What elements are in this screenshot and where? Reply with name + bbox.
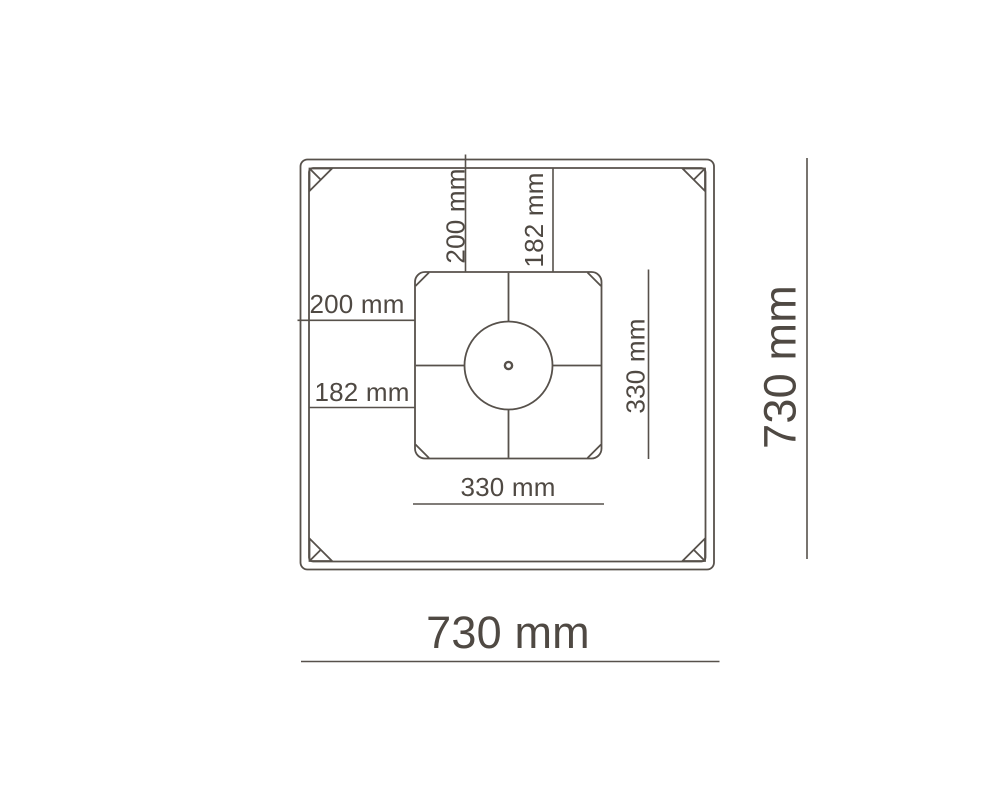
gusset-fold-line	[310, 550, 321, 561]
label-inner-square-width: 330 mm	[460, 472, 555, 502]
corner-gusset-top-right	[683, 169, 706, 192]
corner-gusset-bottom-left	[310, 539, 333, 562]
label-top-inner-offset: 182 mm	[519, 172, 549, 267]
label-left-inner-offset: 182 mm	[314, 377, 409, 407]
plate-outline-group	[301, 160, 715, 570]
label-left-outer-offset: 200 mm	[309, 289, 404, 319]
corner-gusset-top-left	[310, 169, 333, 192]
center-circle	[465, 322, 553, 410]
outer-plate-outer-edge	[301, 160, 715, 570]
technical-drawing-canvas: 200 mm 182 mm 200 mm 182 mm 330 mm 330 m…	[0, 0, 1001, 801]
label-outer-square-height: 730 mm	[755, 285, 806, 449]
dimension-lines-group	[298, 155, 808, 662]
gusset-fold-line	[694, 550, 705, 561]
gusset-fold-line	[694, 169, 705, 180]
label-top-outer-offset: 200 mm	[441, 168, 471, 263]
label-outer-square-width: 730 mm	[426, 607, 590, 658]
center-hole-icon	[505, 362, 512, 369]
dimension-drawing-svg: 200 mm 182 mm 200 mm 182 mm 330 mm 330 m…	[0, 0, 1001, 801]
gusset-fold-line	[310, 169, 321, 180]
corner-gusset-bottom-right	[683, 539, 706, 562]
dimension-labels-group: 200 mm 182 mm 200 mm 182 mm 330 mm 330 m…	[309, 168, 805, 658]
label-inner-square-height: 330 mm	[621, 318, 651, 413]
